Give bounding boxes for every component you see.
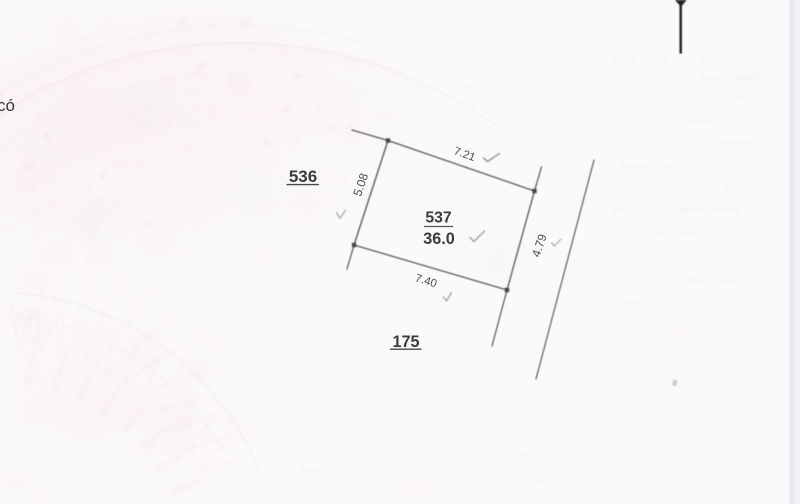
svg-text:có: có — [0, 96, 15, 115]
svg-text:537: 537 — [425, 210, 452, 227]
svg-text:36.0: 36.0 — [423, 230, 455, 248]
svg-text:536: 536 — [289, 167, 317, 186]
